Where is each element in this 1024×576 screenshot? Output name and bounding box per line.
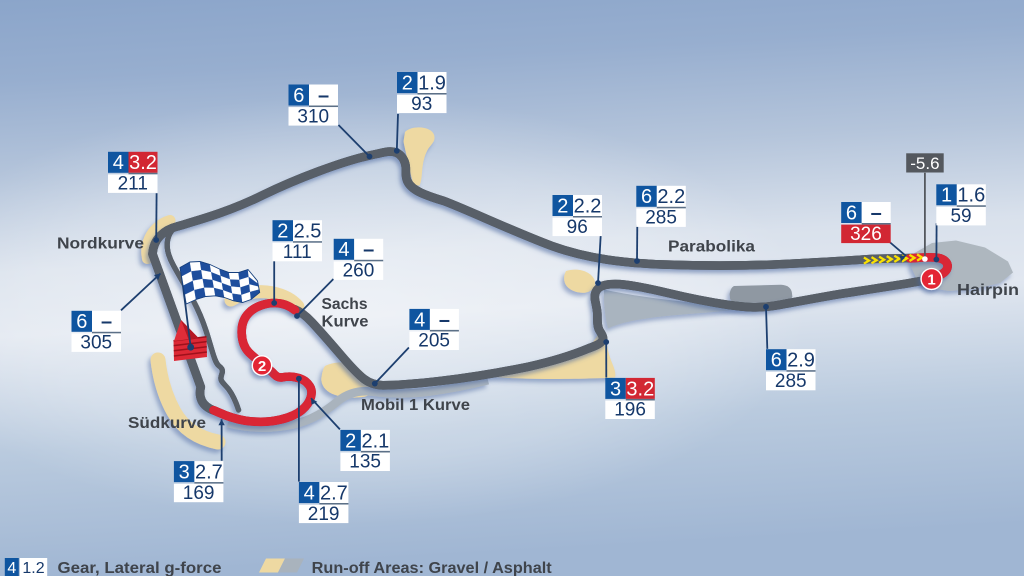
svg-text:96: 96	[567, 217, 588, 238]
svg-text:2: 2	[258, 358, 266, 375]
svg-text:1.2: 1.2	[22, 560, 44, 576]
svg-text:4: 4	[7, 560, 16, 576]
svg-text:Sachs: Sachs	[322, 296, 368, 313]
svg-text:2.5: 2.5	[294, 221, 322, 243]
svg-text:2: 2	[277, 221, 288, 243]
svg-text:4: 4	[338, 239, 349, 261]
svg-text:2: 2	[402, 72, 413, 94]
svg-text:2.2: 2.2	[657, 186, 685, 208]
svg-text:–: –	[871, 202, 882, 224]
svg-text:–: –	[101, 311, 112, 333]
svg-text:135: 135	[349, 452, 381, 473]
svg-text:6: 6	[771, 350, 782, 372]
svg-text:1: 1	[941, 185, 952, 207]
svg-text:6: 6	[641, 186, 652, 208]
svg-text:169: 169	[183, 483, 215, 504]
svg-text:211: 211	[118, 174, 148, 195]
svg-text:Mobil 1 Kurve: Mobil 1 Kurve	[361, 397, 470, 414]
svg-text:3.2: 3.2	[129, 152, 157, 174]
svg-text:4: 4	[304, 482, 315, 504]
svg-text:6: 6	[76, 311, 87, 333]
svg-text:59: 59	[950, 206, 971, 227]
svg-text:–: –	[363, 239, 374, 261]
svg-text:Nordkurve: Nordkurve	[57, 236, 144, 253]
svg-text:Südkurve: Südkurve	[128, 415, 206, 432]
svg-text:2.9: 2.9	[787, 350, 815, 372]
svg-text:219: 219	[308, 504, 340, 525]
svg-text:111: 111	[283, 242, 312, 263]
svg-text:1: 1	[927, 272, 935, 289]
svg-text:Gear, Lateral g-force: Gear, Lateral g-force	[58, 560, 222, 576]
svg-text:2.7: 2.7	[320, 482, 348, 504]
svg-text:2.7: 2.7	[195, 462, 223, 484]
svg-text:2.1: 2.1	[361, 430, 389, 452]
svg-text:2: 2	[345, 430, 356, 452]
svg-text:3: 3	[179, 462, 190, 484]
svg-text:3: 3	[610, 378, 621, 400]
svg-text:–: –	[439, 309, 450, 331]
svg-text:Hairpin: Hairpin	[957, 282, 1019, 299]
svg-text:-5.6: -5.6	[910, 154, 939, 173]
svg-text:196: 196	[614, 400, 646, 421]
svg-text:1.9: 1.9	[418, 72, 446, 94]
svg-text:260: 260	[343, 261, 375, 282]
svg-text:Kurve: Kurve	[322, 314, 369, 331]
svg-text:310: 310	[297, 106, 329, 127]
svg-text:4: 4	[113, 152, 124, 174]
svg-text:2: 2	[557, 195, 568, 217]
svg-text:4: 4	[414, 309, 425, 331]
svg-text:–: –	[318, 85, 329, 107]
svg-text:Parabolika: Parabolika	[668, 239, 755, 256]
svg-text:6: 6	[293, 85, 304, 107]
svg-text:326: 326	[850, 224, 882, 245]
svg-text:205: 205	[418, 331, 450, 352]
svg-text:285: 285	[775, 371, 807, 392]
svg-text:93: 93	[411, 94, 432, 115]
svg-text:Run-off Areas: Gravel / Asphal: Run-off Areas: Gravel / Asphalt	[312, 560, 553, 576]
svg-text:305: 305	[80, 333, 112, 354]
svg-text:3.2: 3.2	[626, 378, 654, 400]
svg-text:2.2: 2.2	[574, 195, 602, 217]
svg-text:285: 285	[645, 208, 677, 229]
svg-text:1.6: 1.6	[957, 185, 985, 207]
svg-text:6: 6	[846, 202, 857, 224]
